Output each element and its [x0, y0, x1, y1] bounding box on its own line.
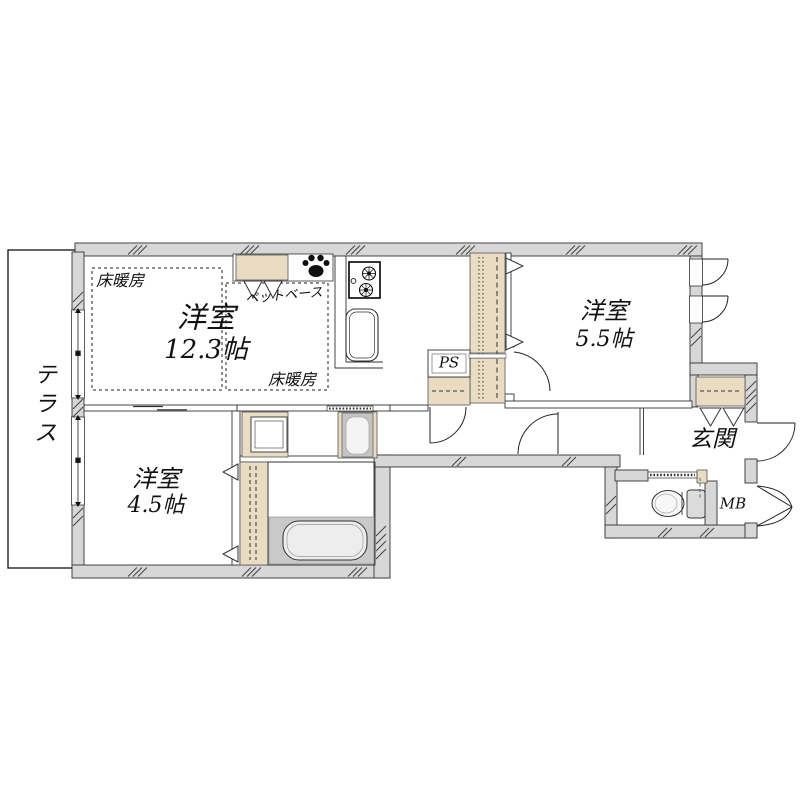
terrace-label: テラス [31, 363, 54, 450]
entrance-label: 玄関 [689, 429, 735, 452]
laundry-pan [251, 417, 287, 452]
bathtub [283, 521, 367, 560]
shoe-cabinet-door-marker [700, 408, 721, 426]
bedroom-east-name-label: 洋室 [580, 299, 628, 323]
floor-heating-label-right: 床暖房 [268, 372, 316, 388]
bedroom-east-size-label: 5.5帖 [576, 329, 633, 351]
closet-45 [240, 462, 268, 565]
closet-55-door-marker [506, 334, 523, 350]
closet-55-door-marker [506, 258, 523, 274]
entrance-door-arc [757, 423, 795, 461]
mb-label: MB [720, 497, 746, 512]
bedroom-south-name-label: 洋室 [132, 467, 180, 491]
closet-55-lower [470, 358, 505, 403]
stove [349, 262, 380, 298]
shoe-cabinet-door-marker [723, 408, 744, 426]
bedroom-east-door-arc [514, 352, 550, 391]
genkan-step-line [640, 408, 644, 455]
toilet [652, 478, 705, 518]
floor-heating-label-left: 床暖房 [96, 273, 144, 289]
storage-door-arc [430, 407, 466, 443]
floorplan-drawing [0, 0, 800, 800]
hall-door-arc [518, 414, 558, 454]
closet-55-upper [470, 253, 505, 353]
floorplan-canvas: テラス 床暖房 床暖房 ペットベース 洋室 12.3帖 洋室 5.5帖 洋室 4… [0, 0, 800, 800]
kitchen-sink [346, 309, 378, 361]
washing-machine [342, 413, 373, 457]
closet-45-door-marker [223, 546, 238, 562]
living-room-name-label: 洋室 [177, 304, 235, 333]
closet-45-door-marker [223, 464, 238, 480]
window-east-2-arc [702, 296, 728, 322]
window-east-1-arc [702, 259, 728, 285]
bathroom [268, 462, 375, 565]
ps-label: PS [439, 356, 459, 371]
living-room-size-label: 12.3帖 [164, 337, 248, 363]
pet-base-cabinet [236, 255, 288, 280]
toilet-door-post [697, 470, 707, 483]
bedroom-south-size-label: 4.5帖 [128, 495, 185, 517]
